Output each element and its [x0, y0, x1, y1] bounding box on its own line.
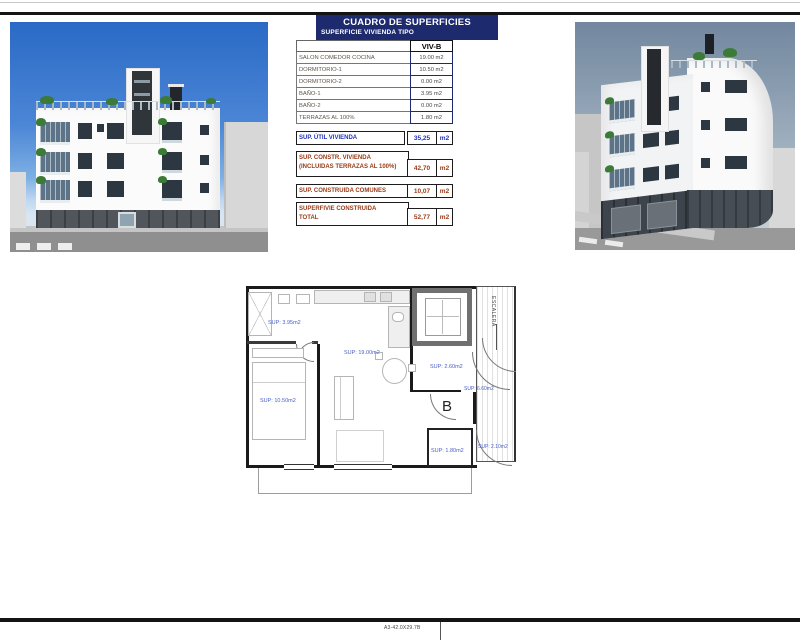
corner-perspective-render [575, 22, 795, 250]
window [725, 80, 747, 93]
sheet-format-note: A3-42.0X29.7B [384, 625, 421, 631]
row-value: 10.50 m2 [410, 64, 453, 76]
furniture-dining-table [382, 358, 407, 384]
furniture-rug [336, 430, 384, 462]
floor-plan: ESCALERA SUP: 3.95m2 SUP: 19.00m2 SUP: 1… [244, 280, 528, 512]
room-label-terrace2: SUP: 2.10m2 [478, 444, 508, 450]
balcony-plant [36, 176, 46, 184]
furniture-sink [296, 294, 310, 304]
balcony-plant [158, 176, 167, 183]
surfaces-table-title: CUADRO DE SUPERFICIES [316, 17, 498, 28]
tower-glass-slot [647, 49, 661, 125]
wall-bedroom [317, 344, 320, 465]
summary-value-number: 10,07 [408, 188, 436, 195]
balcony-plant [36, 118, 46, 126]
window [643, 132, 659, 148]
window [78, 123, 92, 139]
table-row: DORMITORIO-2 0.00 m2 [296, 76, 453, 88]
window [725, 156, 747, 169]
front-elevation-render [10, 22, 268, 252]
room-label-hall: SUP: 2.60m2 [430, 364, 463, 370]
row-value: 3.95 m2 [410, 88, 453, 100]
roof-plant [206, 98, 216, 104]
chimney [705, 34, 714, 54]
window [107, 181, 124, 197]
furniture-sofa-back-line [340, 377, 341, 419]
column-header-vivb: VIV-B [410, 40, 453, 52]
window [162, 122, 182, 143]
furniture-shower [248, 292, 272, 336]
window [200, 125, 209, 135]
summary-label-text: SUPERFIVIE CONSTRUIDA [299, 206, 376, 212]
garage-door [647, 200, 677, 230]
roof-railing [671, 60, 757, 68]
summary-value-util: 35,25 m2 [407, 131, 453, 145]
roof-plant [693, 52, 705, 60]
neighbor-wall-left [575, 152, 589, 238]
window [107, 123, 124, 139]
furniture-wardrobe [252, 348, 304, 358]
window [97, 124, 104, 132]
ground-floor-corner [687, 190, 773, 228]
room-label-bathroom: SUP: 3.95m2 [268, 320, 301, 326]
window [665, 164, 679, 180]
summary-value-unit: m2 [436, 185, 452, 197]
furniture-bed-pillow-line [253, 382, 305, 383]
room-label-living: SUP: 19.00m2 [344, 350, 380, 356]
room-label-bedroom: SUP: 10.50m2 [260, 398, 296, 404]
table-row: BAÑO-1 3.95 m2 [296, 88, 453, 100]
tower-window-slit [134, 93, 150, 96]
garage-door [611, 204, 641, 234]
unit-letter-label: B [442, 398, 452, 415]
furniture-toilet [278, 294, 290, 304]
roof-plant [160, 96, 172, 104]
row-value: 1.80 m2 [410, 112, 453, 124]
elevator-cabin-cross-h [427, 316, 459, 317]
table-row: SALON COMEDOR COCINA 19.00 m2 [296, 52, 453, 64]
crosswalk-stripe [37, 243, 51, 250]
furniture-oven [380, 292, 392, 302]
roof-plant [40, 96, 54, 104]
crosswalk-stripe [58, 243, 72, 250]
crosswalk-stripe [16, 243, 30, 250]
summary-label-text: SUP. CONSTR. VIVIENDA [299, 155, 371, 161]
page-top-thin-rule [0, 2, 800, 3]
wall-bathroom [247, 341, 296, 344]
window [200, 155, 209, 165]
elevator-cabin [425, 298, 461, 336]
balcony-plant [158, 148, 167, 155]
balcony-plant [36, 148, 46, 156]
neighbor-wall-left [10, 172, 26, 228]
summary-label-total: SUPERFIVIE CONSTRUIDA TOTAL [296, 202, 409, 226]
summary-label-text: SUP. CONSTRUIDA COMUNES [299, 188, 386, 194]
summary-label-constr: SUP. CONSTR. VIVIENDA (INCLUIDAS TERRAZA… [296, 151, 409, 177]
surfaces-table-subtitle: SUPERFICIE VIVIENDA TIPO [316, 29, 498, 36]
balcony-outline [258, 468, 472, 494]
empty-header-cell [296, 40, 410, 52]
furniture-kitchen-counter [314, 290, 410, 304]
balcony-plant [158, 118, 167, 125]
window [725, 118, 747, 131]
table-row: TERRAZAS AL 100% 1.80 m2 [296, 112, 453, 124]
surfaces-table-head-row: VIV-B [296, 40, 453, 52]
furniture-cooktop [364, 292, 376, 302]
row-label: DORMITORIO-1 [296, 64, 410, 76]
row-label: BAÑO-2 [296, 100, 410, 112]
window [701, 82, 710, 92]
row-label: DORMITORIO-2 [296, 76, 410, 88]
window [78, 181, 92, 197]
window [162, 152, 182, 173]
roof-plant [723, 48, 737, 57]
neighbor-building-right [224, 122, 268, 228]
summary-label-text: TOTAL [299, 215, 318, 221]
table-row: DORMITORIO-1 10.50 m2 [296, 64, 453, 76]
roof-plant [106, 98, 118, 105]
summary-value-total: 52,77 m2 [407, 208, 453, 226]
summary-value-unit: m2 [436, 160, 452, 176]
summary-value-constr: 42,70 m2 [407, 159, 453, 177]
surfaces-table-header: CUADRO DE SUPERFICIES SUPERFICIE VIVIEND… [316, 15, 498, 40]
summary-label-util: SUP. ÚTIL VIVIENDA [296, 131, 405, 145]
title-block-divider [440, 622, 441, 640]
window [665, 130, 679, 146]
row-value: 19.00 m2 [410, 52, 453, 64]
room-label-common: SUP: 6.60m2 [464, 386, 494, 392]
window [643, 166, 659, 182]
elevator-cabin-cross-v [442, 300, 443, 334]
table-row: BAÑO-2 0.00 m2 [296, 100, 453, 112]
summary-value-number: 52,77 [408, 214, 436, 221]
summary-value-unit: m2 [436, 209, 452, 225]
row-value: 0.00 m2 [410, 76, 453, 88]
roof-railing [36, 101, 220, 110]
summary-label-comunes: SUP. CONSTRUIDA COMUNES [296, 184, 409, 198]
surfaces-table: VIV-B SALON COMEDOR COCINA 19.00 m2 DORM… [296, 40, 453, 124]
summary-label-text: (INCLUIDAS TERRAZAS AL 100%) [299, 164, 396, 170]
row-label: BAÑO-1 [296, 88, 410, 100]
furniture-chair [408, 364, 416, 372]
row-value: 0.00 m2 [410, 100, 453, 112]
wall-hall-bottom [412, 390, 461, 392]
entrance-door [118, 212, 136, 228]
row-label: TERRAZAS AL 100% [296, 112, 410, 124]
furniture-sofa [334, 376, 354, 420]
page-bottom-rule [0, 618, 800, 622]
summary-value-comunes: 10,07 m2 [407, 184, 453, 198]
window [701, 158, 710, 168]
room-label-terrace: SUP: 1.80m2 [431, 448, 464, 454]
summary-value-number: 42,70 [408, 165, 436, 172]
row-label: SALON COMEDOR COCINA [296, 52, 410, 64]
chimney-cap [168, 84, 184, 87]
window [701, 120, 710, 130]
summary-value-number: 35,25 [408, 135, 436, 142]
window [78, 153, 92, 169]
summary-label-text: SUP. ÚTIL VIVIENDA [299, 135, 357, 141]
window [107, 153, 124, 169]
summary-value-unit: m2 [436, 132, 452, 144]
window [162, 180, 182, 201]
furniture-sink-kitchen [392, 312, 404, 322]
tower-window-slit [134, 80, 150, 83]
window [200, 183, 209, 193]
stairs-label: ESCALERA [490, 296, 496, 327]
